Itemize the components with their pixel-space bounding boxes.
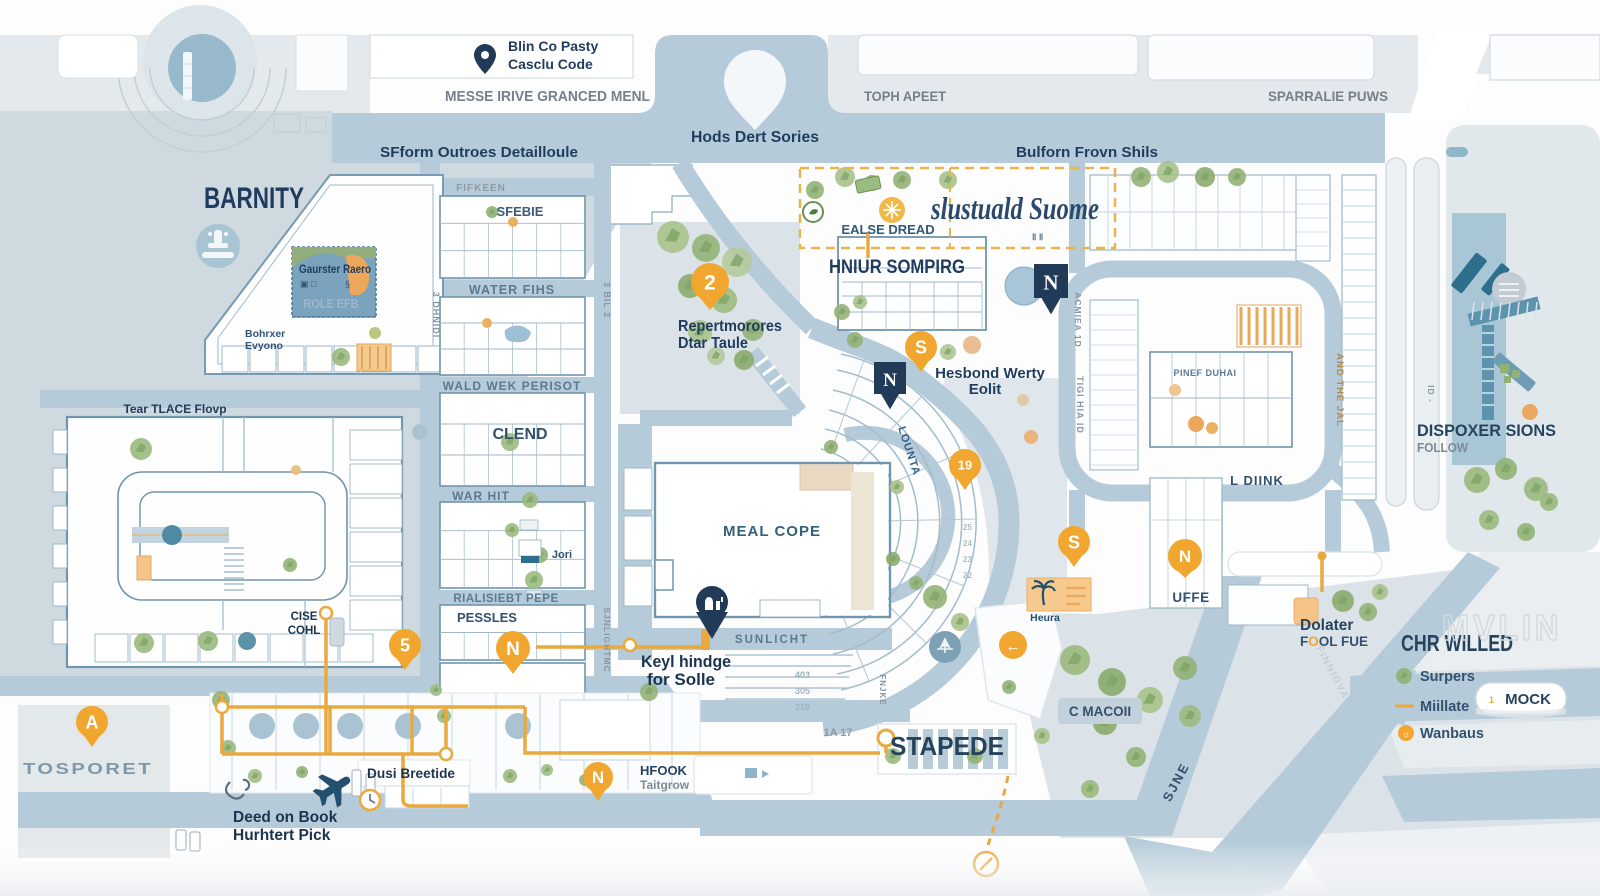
svg-text:Keyl hindge: Keyl hindge xyxy=(641,652,731,671)
svg-text:DISPOXER SIONS: DISPOXER SIONS xyxy=(1417,422,1556,440)
svg-text:Taitgrow: Taitgrow xyxy=(640,778,690,792)
svg-text:TOPH APEET: TOPH APEET xyxy=(864,88,946,104)
svg-text:FNJKE: FNJKE xyxy=(878,674,887,705)
svg-text:ID -: ID - xyxy=(1426,385,1436,403)
svg-text:Hods Dert Sories: Hods Dert Sories xyxy=(691,129,819,146)
svg-text:SUNLICHT: SUNLICHT xyxy=(735,634,809,646)
svg-text:MEAL COPE: MEAL COPE xyxy=(723,523,821,540)
svg-text:CLEND: CLEND xyxy=(492,426,547,443)
svg-text:25: 25 xyxy=(963,523,972,532)
svg-text:CISE: CISE xyxy=(291,611,318,623)
svg-text:SJNLIGHTMC: SJNLIGHTMC xyxy=(602,607,612,672)
svg-text:Bulforn Frovn Shils: Bulforn Frovn Shils xyxy=(1016,144,1158,161)
svg-text:UFFE: UFFE xyxy=(1172,590,1209,605)
svg-text:19: 19 xyxy=(958,458,972,473)
svg-text:N: N xyxy=(592,768,604,787)
svg-text:Blin Co Pasty: Blin Co Pasty xyxy=(508,38,598,54)
svg-text:FOOL FUE: FOOL FUE xyxy=(1300,634,1368,649)
svg-text:22: 22 xyxy=(963,571,972,580)
svg-text:COHL: COHL xyxy=(288,625,321,637)
svg-text:Wanbaus: Wanbaus xyxy=(1420,726,1484,742)
svg-text:Surpers: Surpers xyxy=(1420,669,1475,685)
svg-text:Hurhtert Pick: Hurhtert Pick xyxy=(233,827,331,844)
svg-text:3 DHNIDI: 3 DHNIDI xyxy=(431,292,441,339)
svg-text:PESSLES: PESSLES xyxy=(457,610,517,625)
svg-text:Hesbond Werty: Hesbond Werty xyxy=(935,365,1045,382)
svg-text:Dusi Breetide: Dusi Breetide xyxy=(367,766,455,781)
svg-text:TIGI HIA ID: TIGI HIA ID xyxy=(1075,376,1085,434)
svg-text:N: N xyxy=(1179,547,1191,566)
svg-text:FIFKEEN: FIFKEEN xyxy=(456,183,506,194)
svg-text:N: N xyxy=(506,639,520,660)
svg-text:Tear TLACE Flovp: Tear TLACE Flovp xyxy=(123,402,226,416)
svg-text:TOSPORET: TOSPORET xyxy=(23,761,153,778)
svg-text:for Solle: for Solle xyxy=(647,670,715,689)
svg-text:☼: ☼ xyxy=(1402,729,1410,739)
svg-text:S: S xyxy=(915,337,927,357)
svg-text:218: 218 xyxy=(795,702,810,712)
svg-text:N: N xyxy=(1043,271,1058,295)
svg-text:MVLIN: MVLIN xyxy=(1442,607,1562,648)
svg-text:L DIINK: L DIINK xyxy=(1230,473,1284,488)
svg-text:SFform Outroes Detailloule: SFform Outroes Detailloule xyxy=(380,144,578,161)
svg-text:Ⅱ Ⅱ: Ⅱ Ⅱ xyxy=(1032,232,1043,242)
svg-text:ROLE EFB: ROLE EFB xyxy=(304,296,359,311)
svg-text:S: S xyxy=(1068,532,1080,552)
svg-text:PINEF DUHAI: PINEF DUHAI xyxy=(1173,368,1236,378)
svg-text:RIALISIEBT PEPE: RIALISIEBT PEPE xyxy=(453,593,558,605)
svg-text:BARNITY: BARNITY xyxy=(204,182,304,215)
svg-text:HNIUR SOMPIRG: HNIUR SOMPIRG xyxy=(829,257,965,278)
svg-text:Evyono: Evyono xyxy=(245,340,283,352)
svg-text:EALSE DREAD: EALSE DREAD xyxy=(841,222,934,237)
svg-text:HFOOK: HFOOK xyxy=(640,763,688,778)
svg-text:Dolater: Dolater xyxy=(1300,617,1353,634)
svg-text:←: ← xyxy=(1006,638,1021,655)
svg-text:§: § xyxy=(345,279,350,289)
svg-text:Miillate: Miillate xyxy=(1420,699,1469,715)
svg-text:1A 17: 1A 17 xyxy=(824,727,853,739)
svg-text:Jori: Jori xyxy=(552,549,572,561)
svg-text:23: 23 xyxy=(963,555,972,564)
svg-text:A: A xyxy=(86,712,99,732)
svg-text:Bohrxer: Bohrxer xyxy=(245,328,285,340)
svg-text:3 BIL 2: 3 BIL 2 xyxy=(602,282,612,318)
svg-text:24: 24 xyxy=(963,539,972,548)
svg-text:N: N xyxy=(883,370,897,391)
svg-text:Gaurster Raero: Gaurster Raero xyxy=(299,262,371,276)
svg-text:2: 2 xyxy=(704,272,716,295)
svg-text:ACMIEA 1D: ACMIEA 1D xyxy=(1073,292,1083,347)
svg-text:slustuald Suome: slustuald Suome xyxy=(930,190,1099,226)
svg-text:WALD WEK PERISOT: WALD WEK PERISOT xyxy=(443,379,582,393)
svg-text:Dtar Taule: Dtar Taule xyxy=(678,335,748,352)
svg-text:▣ □: ▣ □ xyxy=(300,279,317,289)
svg-text:C MACOII: C MACOII xyxy=(1069,704,1131,719)
svg-text:1: 1 xyxy=(1489,695,1494,705)
svg-text:Repertmorores: Repertmorores xyxy=(678,318,782,335)
svg-text:AND THE JAL: AND THE JAL xyxy=(1334,353,1345,427)
svg-text:Eolit: Eolit xyxy=(969,381,1002,398)
svg-text:SFEBIE: SFEBIE xyxy=(497,204,544,219)
svg-text:WAR HIT: WAR HIT xyxy=(452,489,510,503)
svg-text:Casclu Code: Casclu Code xyxy=(508,56,593,72)
svg-text:STAPEDE: STAPEDE xyxy=(890,731,1004,761)
svg-text:FOLLOW: FOLLOW xyxy=(1417,440,1469,455)
svg-text:305: 305 xyxy=(795,686,810,696)
svg-text:MESSE IRIVE GRANCED MENL: MESSE IRIVE GRANCED MENL xyxy=(445,89,650,105)
svg-text:MOCK: MOCK xyxy=(1505,691,1551,708)
svg-text:WATER FIHS: WATER FIHS xyxy=(469,283,555,297)
svg-text:5: 5 xyxy=(400,635,410,655)
svg-text:403: 403 xyxy=(795,670,810,680)
svg-text:Deed on Book: Deed on Book xyxy=(233,809,338,826)
svg-text:Heura: Heura xyxy=(1030,612,1060,624)
svg-text:SPARRALIE PUWS: SPARRALIE PUWS xyxy=(1268,88,1388,104)
